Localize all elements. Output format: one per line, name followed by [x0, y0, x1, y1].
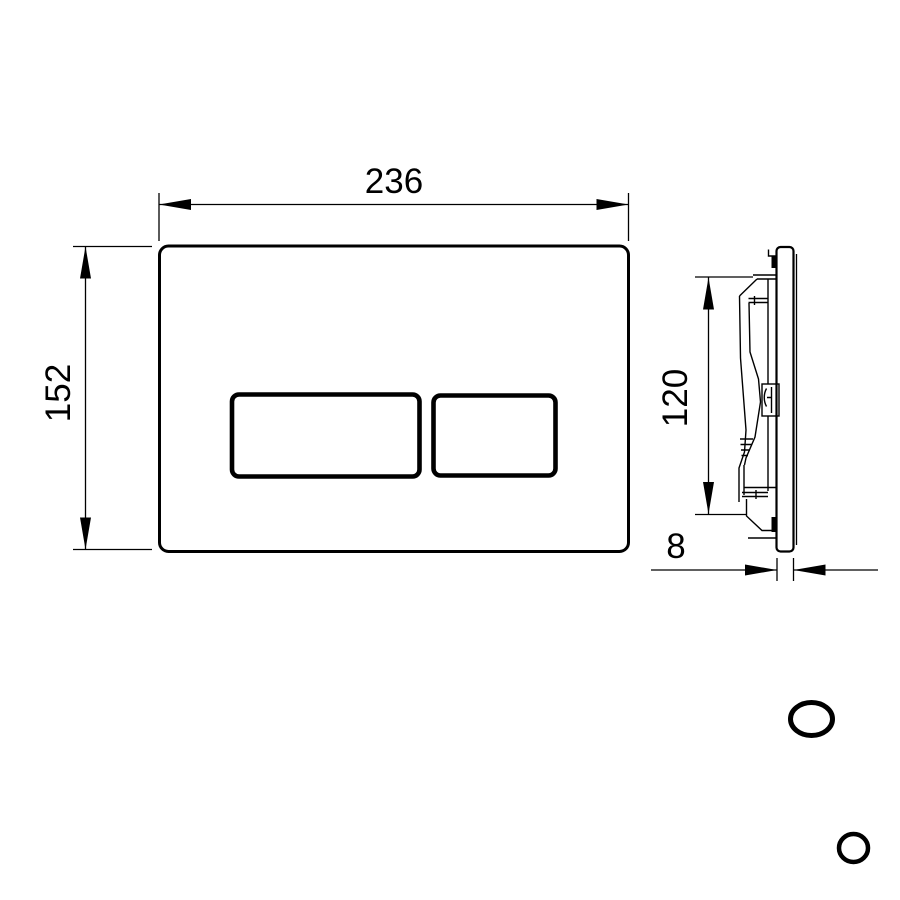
arrowhead-up-icon: [703, 278, 714, 310]
dimension-plate-width: 236: [159, 162, 629, 241]
dimension-plate-width-label: 236: [365, 162, 423, 201]
flush-button-large: [232, 395, 420, 477]
arrowhead-right-icon: [745, 565, 777, 576]
circle-marker-large: [791, 703, 833, 736]
front-view: [160, 246, 629, 552]
technical-drawing: 236 152: [0, 0, 900, 900]
arrowhead-left-icon: [159, 199, 191, 210]
dimension-plate-thickness-label: 8: [666, 527, 685, 566]
arrowhead-down-icon: [703, 482, 714, 514]
side-view: [739, 247, 797, 552]
circle-markers: [791, 703, 869, 863]
arrowhead-down-icon: [80, 518, 91, 550]
mount-clip-top: [772, 256, 777, 268]
arrowhead-right-icon: [597, 199, 629, 210]
housing-fold-edge: [745, 303, 761, 465]
housing-chamfer: [740, 279, 758, 296]
drawing-sheet: 236 152: [0, 0, 900, 900]
dimension-plate-height-label: 152: [39, 364, 78, 422]
dimension-plate-height: 152: [39, 247, 152, 550]
mount-clip-bottom: [772, 517, 777, 532]
top-step: [769, 250, 777, 257]
housing-outer-edge: [739, 296, 746, 502]
arrowhead-up-icon: [80, 247, 91, 279]
upper-rail: [749, 296, 769, 305]
latch-hook: [764, 387, 771, 413]
dimension-plate-thickness: 8: [651, 527, 878, 581]
dimension-mechanism-height-label: 120: [656, 369, 695, 427]
bottom-taper: [747, 499, 773, 531]
mechanism-housing: [739, 275, 779, 538]
arrowhead-left-icon: [794, 565, 826, 576]
lower-rail: [742, 490, 768, 499]
flush-button-small: [434, 396, 556, 476]
circle-marker-small: [839, 834, 868, 862]
